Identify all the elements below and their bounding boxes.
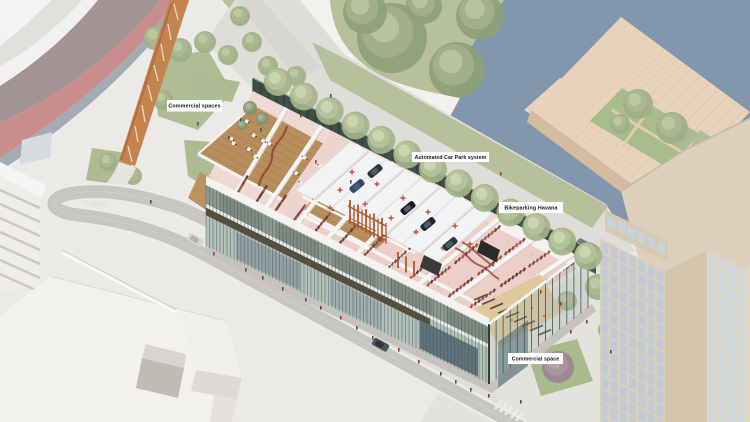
svg-text:Bikeparking Havana: Bikeparking Havana: [504, 205, 558, 211]
svg-text:Commercial space: Commercial space: [512, 356, 559, 362]
svg-text:Automated Car Park system: Automated Car Park system: [415, 155, 487, 161]
svg-text:Commercial spaces: Commercial spaces: [168, 104, 220, 110]
